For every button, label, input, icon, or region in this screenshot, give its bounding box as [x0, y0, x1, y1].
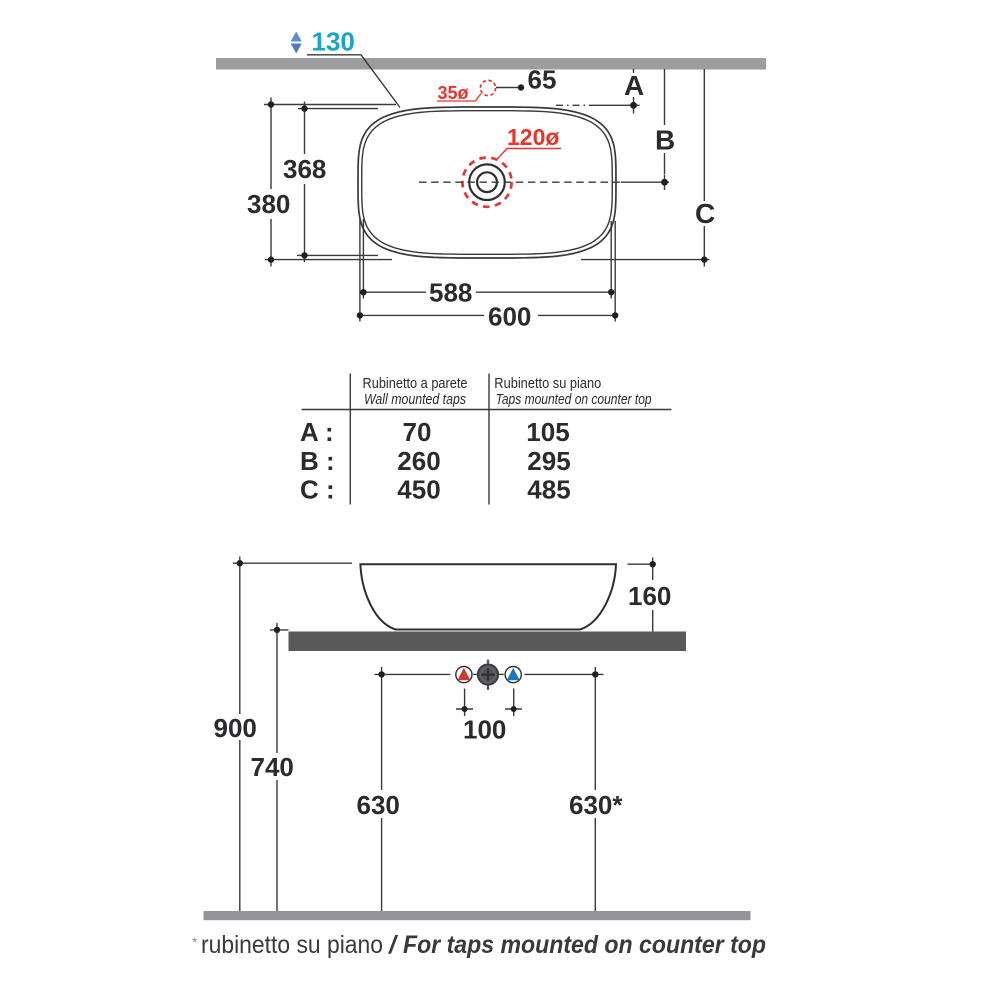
svg-text:485: 485: [527, 475, 570, 505]
svg-text:900: 900: [214, 713, 257, 743]
svg-text:Rubinetto su piano: Rubinetto su piano: [494, 376, 601, 392]
svg-text:A :: A :: [300, 417, 334, 447]
svg-text:Rubinetto a parete: Rubinetto a parete: [363, 376, 468, 392]
svg-text:630*: 630*: [569, 790, 623, 820]
svg-text:105: 105: [526, 417, 569, 447]
svg-text:Taps mounted on counter top: Taps mounted on counter top: [496, 392, 652, 408]
svg-text:B :: B :: [300, 446, 335, 476]
svg-text:B: B: [655, 125, 675, 156]
svg-text:380: 380: [247, 189, 290, 219]
svg-text:65: 65: [528, 65, 557, 95]
svg-text:70: 70: [403, 417, 432, 447]
svg-text:120ø: 120ø: [507, 124, 559, 150]
svg-text:368: 368: [283, 154, 326, 184]
svg-text:630: 630: [357, 790, 400, 820]
svg-text:rubinetto su piano: rubinetto su piano: [201, 931, 383, 959]
svg-text:C: C: [695, 198, 715, 229]
svg-text:588: 588: [429, 278, 472, 308]
svg-text:600: 600: [488, 302, 531, 332]
svg-text:740: 740: [251, 752, 294, 782]
svg-text:450: 450: [397, 475, 440, 505]
svg-text:*: *: [192, 934, 198, 950]
svg-text:100: 100: [463, 715, 506, 745]
svg-text:C :: C :: [300, 475, 335, 505]
svg-text:260: 260: [397, 446, 440, 476]
svg-text:295: 295: [527, 446, 570, 476]
svg-text:A: A: [624, 70, 644, 101]
svg-text:Wall mounted taps: Wall mounted taps: [364, 392, 466, 408]
svg-text:160: 160: [628, 581, 671, 611]
svg-text:For taps mounted on counter to: For taps mounted on counter top: [403, 931, 766, 959]
svg-text:130: 130: [312, 27, 355, 57]
svg-text:35ø: 35ø: [438, 83, 469, 103]
